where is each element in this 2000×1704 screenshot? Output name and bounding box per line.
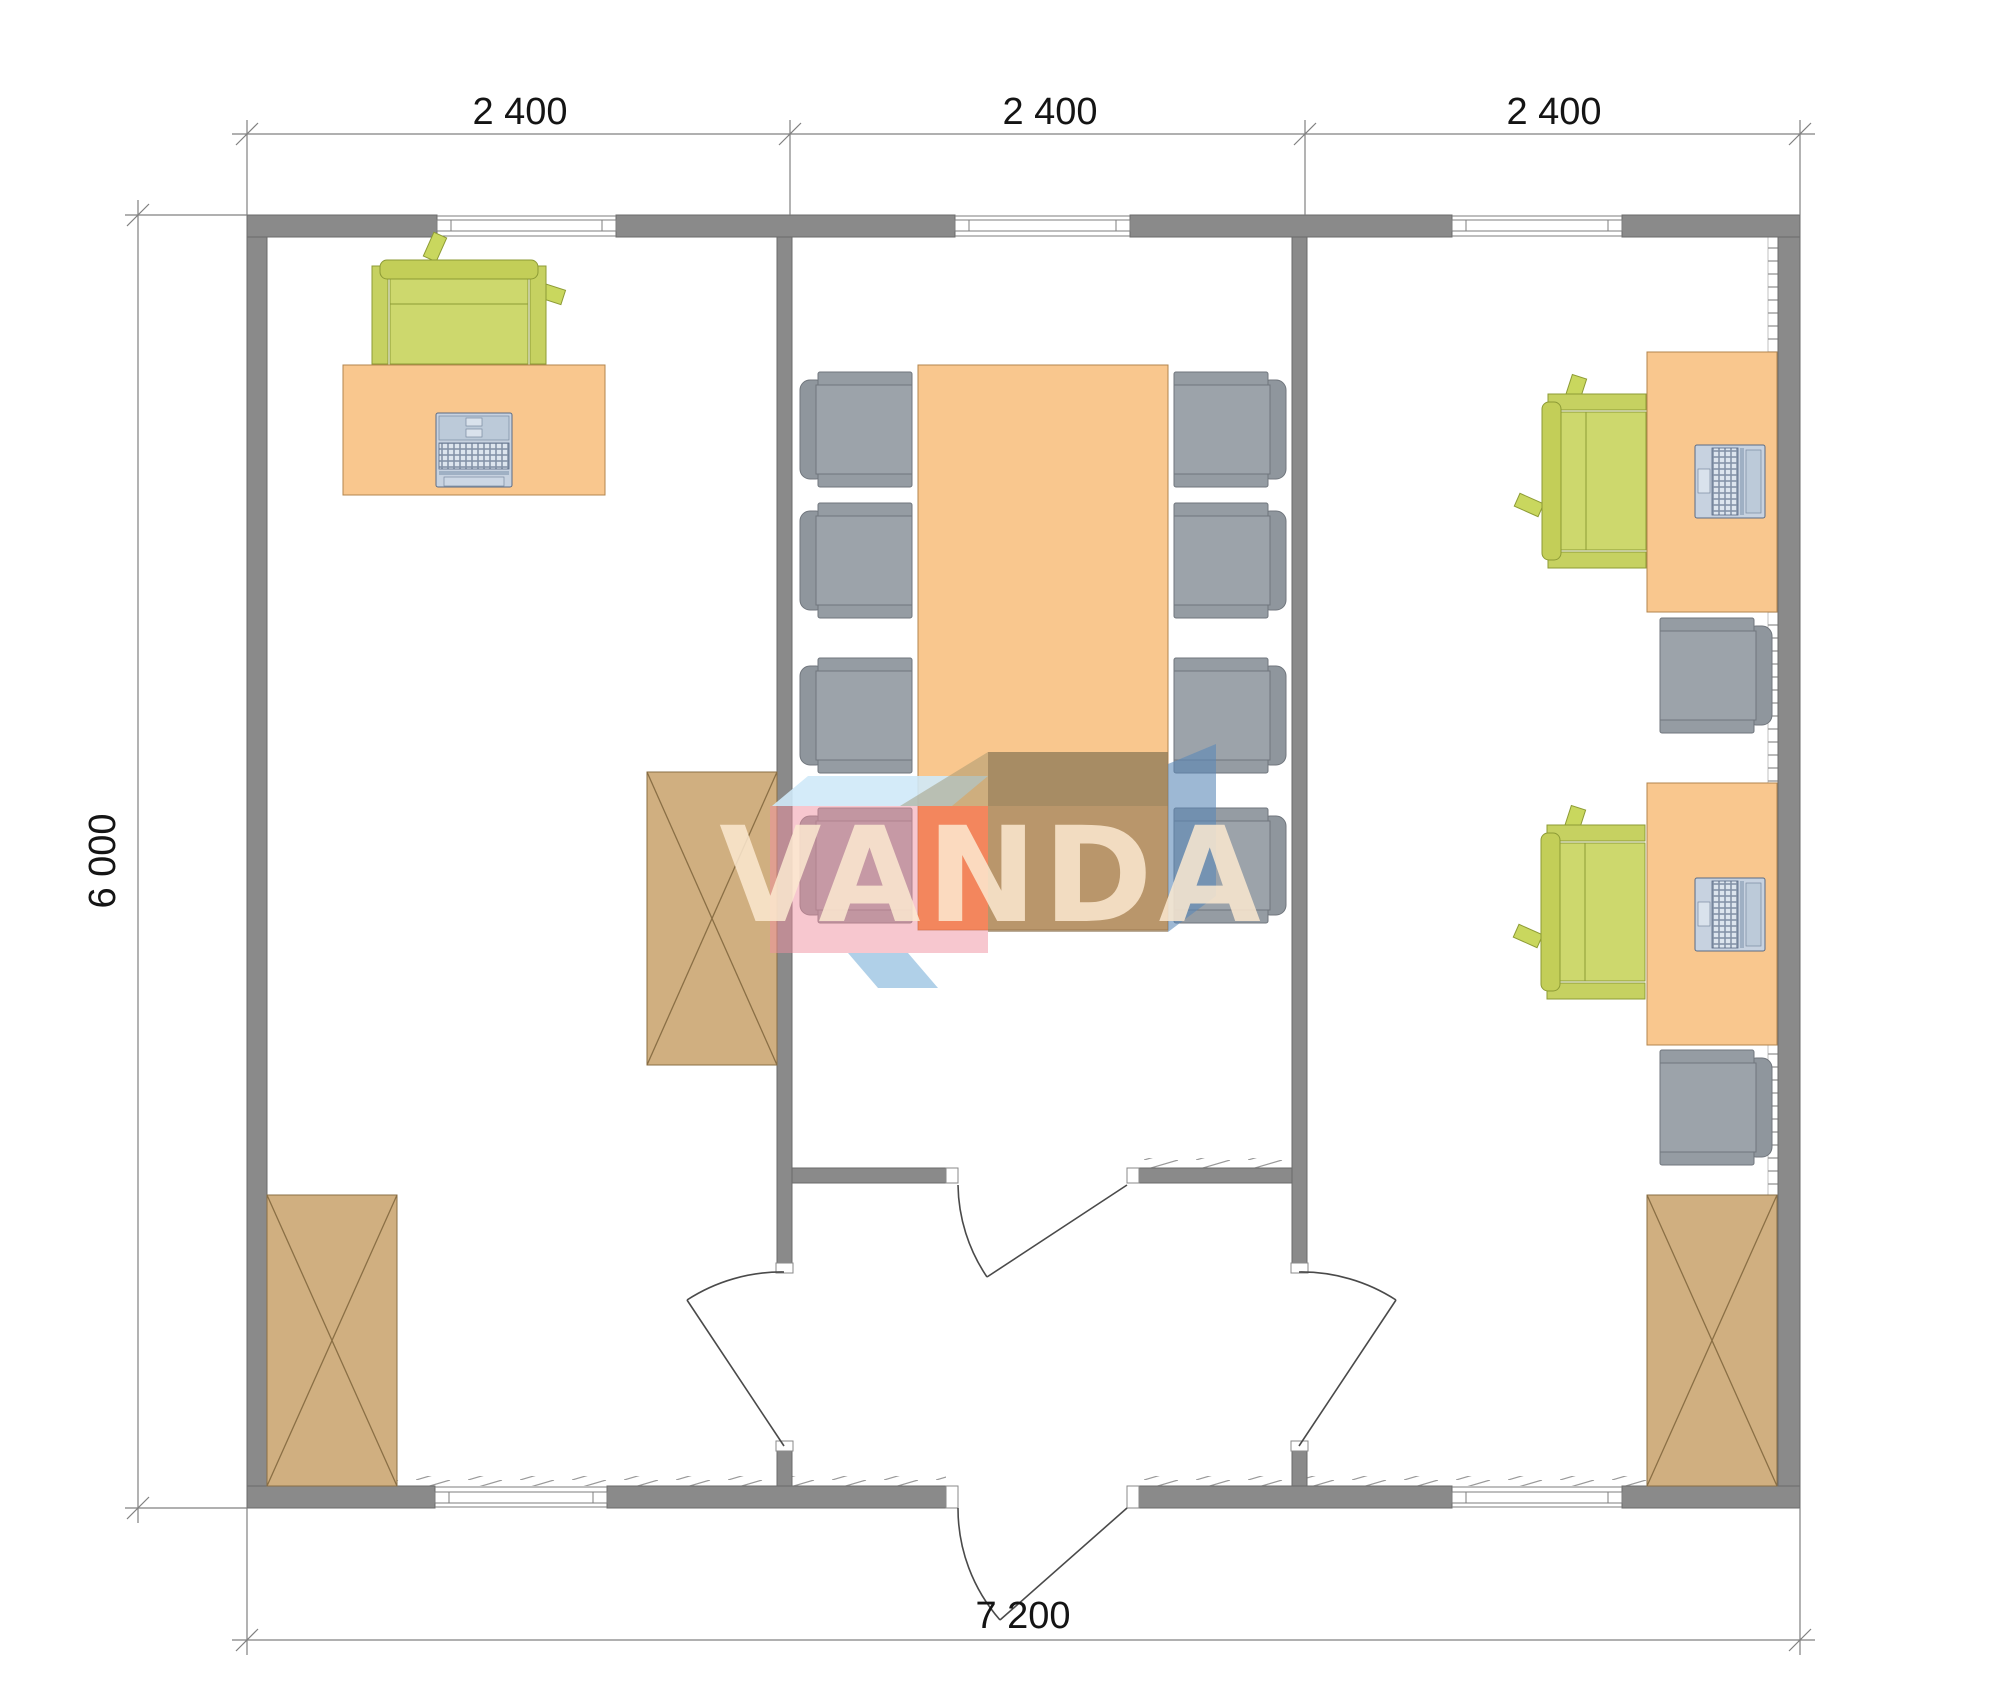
vestibule-wall-insulation	[1139, 1158, 1292, 1168]
vanda-watermark: VANDA	[719, 744, 1267, 988]
dimension-label-top-3: 2 400	[1506, 91, 1601, 133]
vestibule-wall-right	[1139, 1168, 1292, 1183]
dimension-label-top-2: 2 400	[1002, 91, 1097, 133]
dimension-label-top-1: 2 400	[472, 91, 567, 133]
top-wall-segment	[1622, 215, 1800, 237]
wall-stub	[777, 1451, 792, 1486]
bottom-wall-segment	[247, 1486, 435, 1508]
armchair	[800, 372, 912, 487]
top-wall-segment	[616, 215, 955, 237]
wardrobe-cabinet	[1647, 1195, 1777, 1486]
armchair	[800, 503, 912, 618]
top-wall-segment	[1130, 215, 1452, 237]
office-right-furniture	[1513, 352, 1777, 1486]
armchair	[800, 658, 912, 773]
left-wall	[247, 215, 267, 1508]
watermark-blue-wedge	[848, 953, 938, 988]
doors	[687, 1185, 1396, 1620]
wall-stub	[1292, 1451, 1307, 1486]
green-office-chair	[1514, 374, 1646, 568]
bottom-wall-segment	[1622, 1486, 1800, 1508]
vestibule-wall-left	[792, 1168, 946, 1183]
window-top-left	[437, 216, 616, 236]
window-top-right	[1452, 216, 1622, 236]
top-wall-segment	[247, 215, 437, 237]
dimension-label-bottom: 7 200	[975, 1595, 1070, 1637]
laptop	[1695, 878, 1765, 951]
office-left-furniture	[267, 232, 777, 1486]
window-top-middle	[955, 216, 1130, 236]
door-office-right	[1299, 1272, 1396, 1446]
window-bottom-right	[1452, 1487, 1622, 1507]
green-office-chair	[372, 232, 566, 364]
window-bottom-left	[435, 1487, 607, 1507]
armchair	[1174, 372, 1286, 487]
door-office-left	[687, 1272, 784, 1446]
door-frames	[776, 1168, 1308, 1508]
wardrobe-cabinet	[267, 1195, 397, 1486]
armchair	[1174, 503, 1286, 618]
door-meeting-room	[958, 1185, 1127, 1277]
keyboard	[436, 413, 512, 487]
gray-armchair	[1660, 618, 1772, 733]
dimension-label-left: 6 000	[82, 813, 124, 908]
right-wall	[1778, 215, 1800, 1508]
gray-armchair	[1660, 1050, 1772, 1165]
bottom-wall-segment	[607, 1486, 946, 1508]
laptop	[1695, 445, 1765, 518]
floor-plan-canvas: 2 400 2 400 2 400 6 000 7 200 VANDA	[0, 0, 2000, 1704]
partition-wall-left	[777, 237, 792, 1264]
watermark-text: VANDA	[719, 799, 1267, 953]
bottom-wall-segment	[1139, 1486, 1452, 1508]
partition-wall-right	[1292, 237, 1307, 1264]
green-office-chair	[1513, 805, 1645, 999]
floor-plan-drawing: 2 400 2 400 2 400 6 000 7 200 VANDA	[0, 0, 2000, 1704]
